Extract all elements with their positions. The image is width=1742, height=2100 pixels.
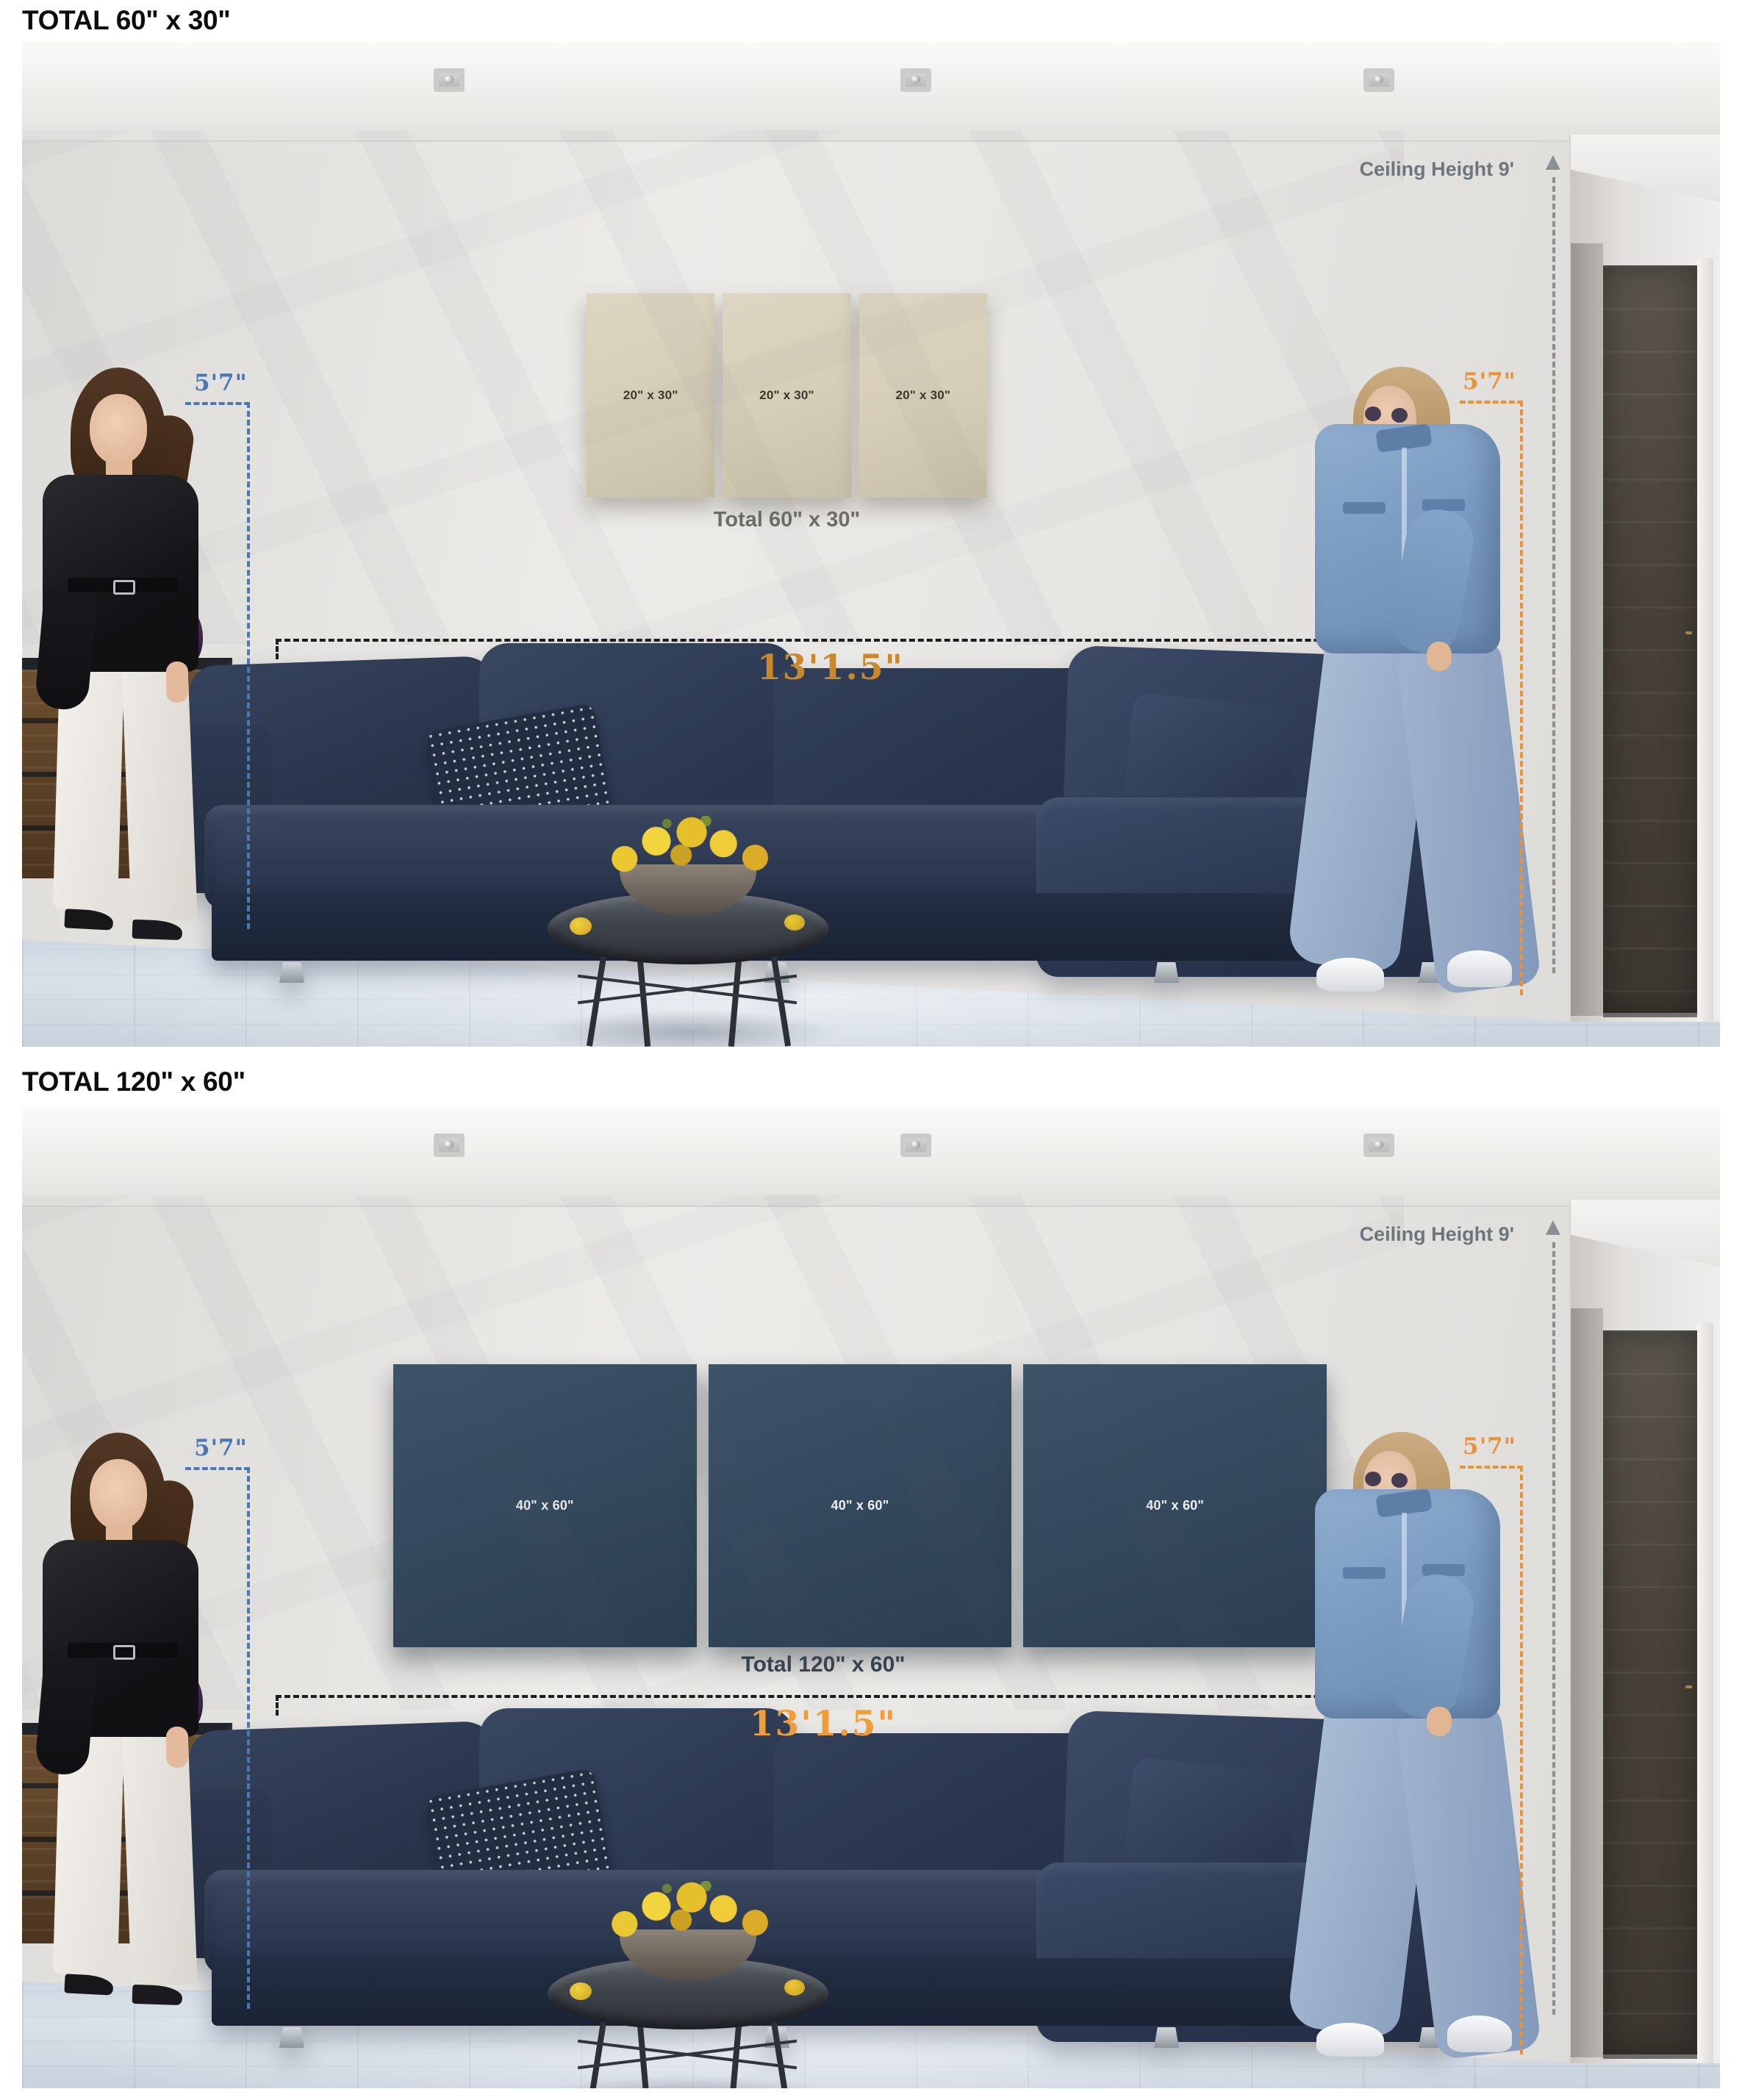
panel-60x30: TOTAL 60" x 30" [22,5,1720,1047]
sofa-leg [1154,2027,1179,2048]
lemon [570,1982,592,2000]
right-wall [1569,135,1720,1022]
right-person-height-label: 5'7" [1463,368,1516,395]
canvas-panel: 20" x 30" [859,293,987,498]
canvas-total-size-label: Total 60" x 30" [587,508,987,532]
coffee-table [548,832,828,1047]
canvas-size-label: 20" x 30" [759,388,814,403]
sofa-leg [279,962,304,983]
lemon [570,917,592,935]
sofa-width-label: 13'1.5" [684,648,978,688]
panel-heading-120x60: TOTAL 120" x 60" [22,1067,1720,1097]
ceiling-spotlight-icon [1363,68,1394,92]
sunglasses-icon [1365,1472,1381,1486]
ceiling-spotlight-icon [1363,1133,1394,1157]
canvas-size-label: 20" x 30" [623,388,678,403]
door-recess [1571,1308,1603,2057]
jacket-pocket [1343,502,1386,514]
right-person-height-label: 5'7" [1463,1433,1516,1460]
ceiling-spotlight-icon [434,1133,465,1157]
right-height-dash-corner [1460,1466,1523,1469]
sofa-back-cushion [773,668,1089,825]
canvas-total-size-label: Total 120" x 60" [393,1652,1253,1677]
shoe [64,1974,113,1995]
hand [1427,642,1452,671]
face [90,394,147,465]
lemon [784,1979,805,1996]
shoe [132,920,183,940]
shoe [64,909,113,930]
sofa-width-label: 13'1.5" [676,1704,970,1744]
lemons [603,1881,780,1944]
right-height-dashed-line [1520,401,1523,995]
left-height-dashed-line [247,402,250,929]
door-handle-icon [1685,631,1692,634]
left-height-dashed-line [247,1467,250,2009]
canvas-size-label: 40" x 60" [831,1498,889,1513]
sofa-back-cushion [773,1733,1089,1891]
canvas-group: 40" x 60" 40" x 60" 40" x 60" [393,1364,1327,1647]
room-scene-120x60: 40" x 60" 40" x 60" 40" x 60" Total 120"… [22,1107,1720,2088]
arrow-up-icon: ▲ [1541,1214,1566,1239]
door-trim [1697,1323,1713,2063]
belt [68,1643,178,1658]
canvas-panel: 20" x 30" [587,293,714,498]
right-height-dash-corner [1460,401,1523,404]
jacket-pocket [1422,499,1465,511]
left-person-height-label: 5'7" [194,370,248,396]
table-shadow [523,1008,853,1047]
sunglasses-icon [1365,406,1381,421]
sneaker [1316,2023,1384,2057]
lemon [784,914,805,931]
canvas-group: 20" x 30" 20" x 30" 20" x 30" [587,293,987,498]
jacket-pocket [1343,1567,1386,1579]
shoe [132,1985,183,2005]
sneaker [1447,2015,1512,2052]
sneaker [1316,958,1384,992]
canvas-size-comparison-page: TOTAL 60" x 30" [0,5,1742,2088]
left-height-dash-corner [185,402,250,405]
jacket-pocket [1422,1564,1465,1576]
door [1603,265,1697,1013]
left-height-dash-corner [185,1467,250,1470]
canvas-panel: 40" x 60" [709,1364,1012,1647]
left-person-height-label: 5'7" [194,1435,248,1461]
canvas-panel: 40" x 60" [393,1364,697,1647]
table-shadow [523,2074,853,2088]
sneaker [1447,950,1512,987]
arrow-up-icon: ▲ [1541,149,1566,174]
canvas-panel: 20" x 30" [723,293,850,498]
canvas-size-label: 40" x 60" [1146,1498,1204,1513]
panel-heading-60x30: TOTAL 60" x 30" [22,5,1720,36]
hand [166,1727,188,1768]
coffee-table [548,1897,828,2088]
ceiling [22,1107,1720,1207]
ceiling-height-label: Ceiling Height 9' [1242,158,1514,181]
right-wall [1569,1200,1720,2063]
hand [1427,1707,1452,1736]
ceiling-spotlight-icon [434,68,465,92]
face [90,1459,147,1530]
person-left [22,368,219,963]
sofa-leg [279,2027,304,2048]
door-trim [1697,258,1713,1022]
belt [68,578,178,592]
door-recess [1571,243,1603,1016]
ceiling-spotlight-icon [900,1133,931,1157]
sofa-leg [1154,962,1179,983]
canvas-size-label: 20" x 30" [896,388,951,403]
canvas-size-label: 40" x 60" [516,1498,574,1513]
ceiling [22,42,1720,142]
ceiling-spotlight-icon [900,68,931,92]
person-left [22,1433,219,2028]
canvas-panel: 40" x 60" [1023,1364,1327,1647]
ceiling-height-label: Ceiling Height 9' [1242,1223,1514,1246]
door [1603,1330,1697,2054]
right-height-dashed-line [1520,1466,1523,2054]
lemons [603,816,780,879]
room-scene-60x30: 20" x 30" 20" x 30" 20" x 30" Total 60" … [22,42,1720,1047]
panel-120x60: TOTAL 120" x 60" [22,1067,1720,2088]
hand [166,662,188,703]
door-handle-icon [1685,1685,1692,1688]
